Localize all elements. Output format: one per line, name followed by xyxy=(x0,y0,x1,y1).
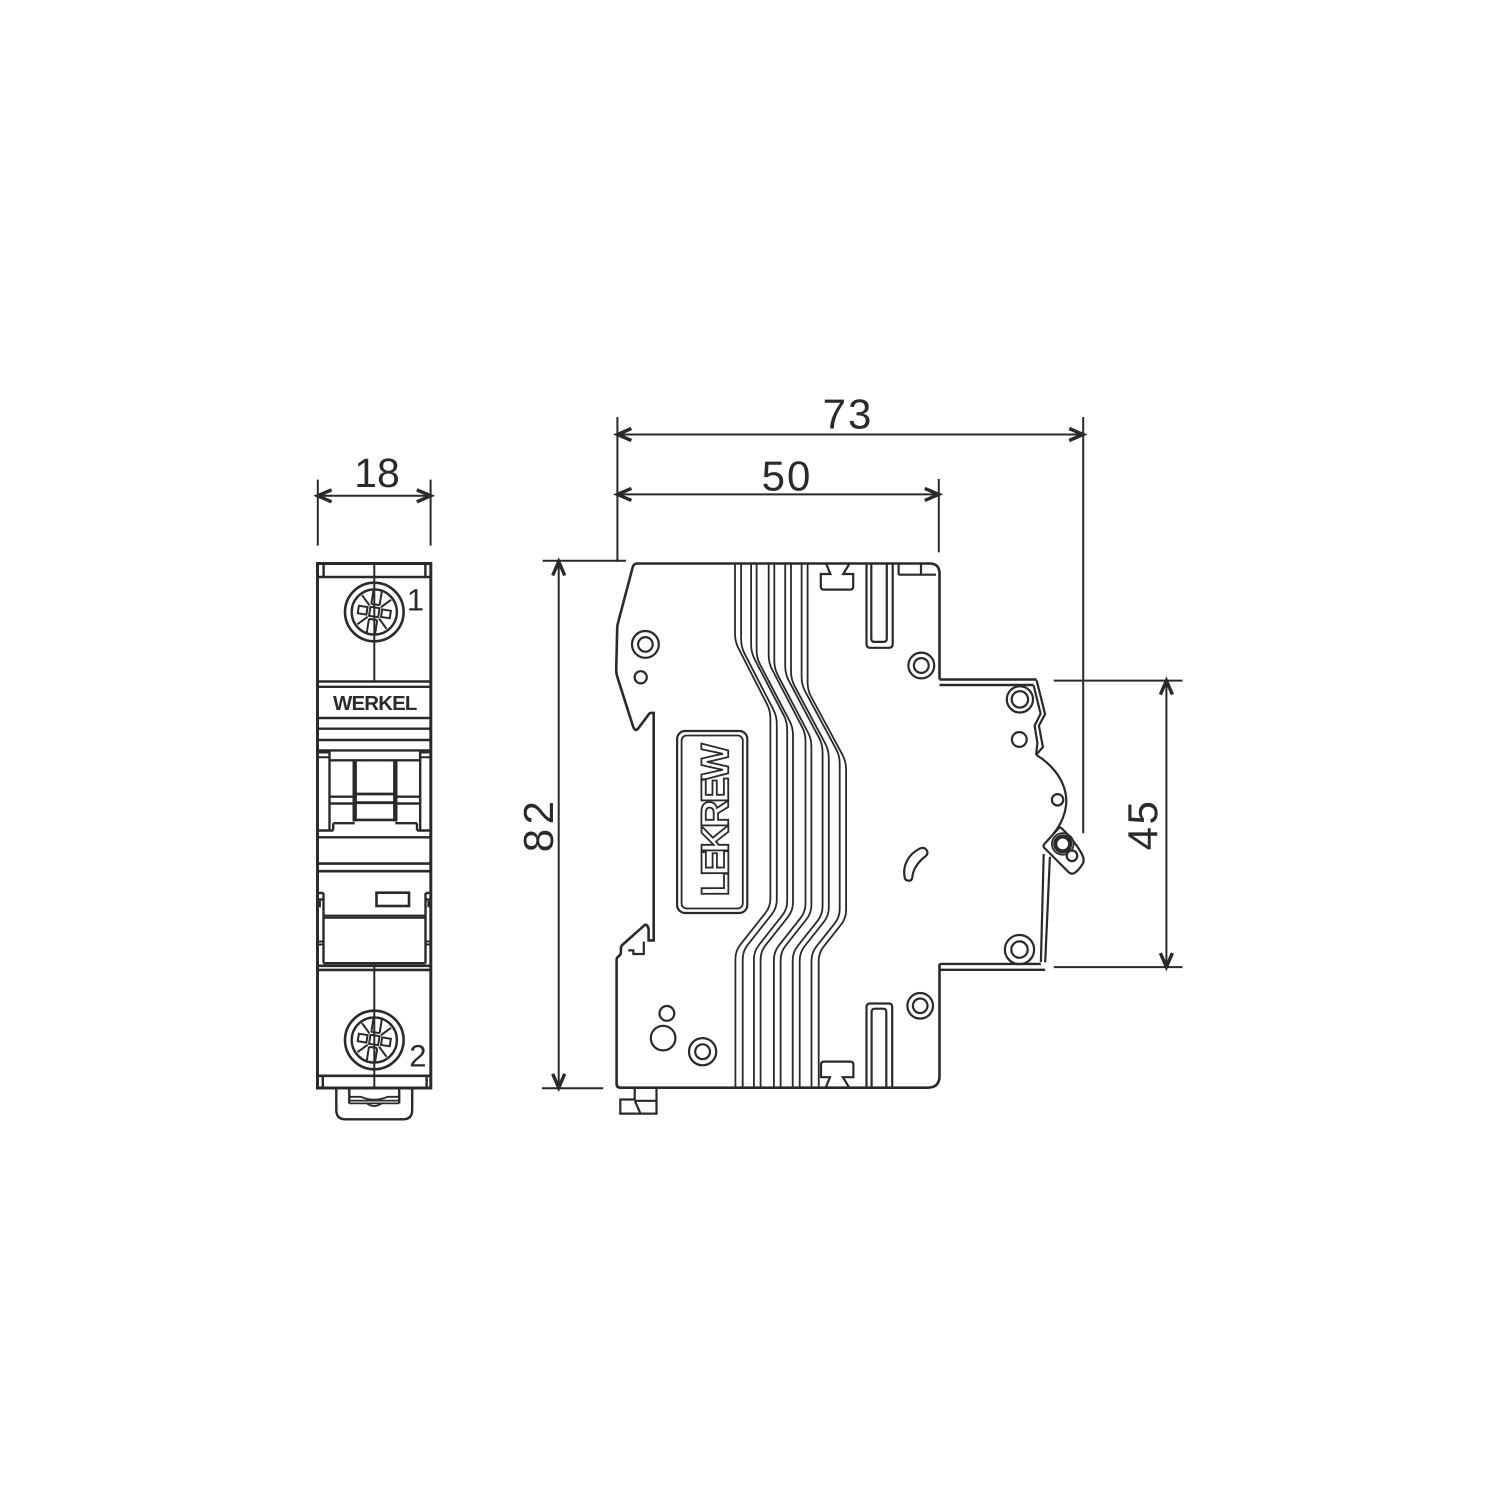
svg-text:50: 50 xyxy=(762,452,813,499)
svg-text:1: 1 xyxy=(407,582,424,617)
svg-text:WERKEL: WERKEL xyxy=(333,693,417,715)
svg-text:73: 73 xyxy=(823,390,874,437)
svg-text:45: 45 xyxy=(1119,799,1166,851)
svg-text:2: 2 xyxy=(409,1038,426,1073)
svg-text:82: 82 xyxy=(515,797,562,853)
svg-text:LEKREW: LEKREW xyxy=(694,743,737,896)
svg-text:18: 18 xyxy=(354,450,400,496)
